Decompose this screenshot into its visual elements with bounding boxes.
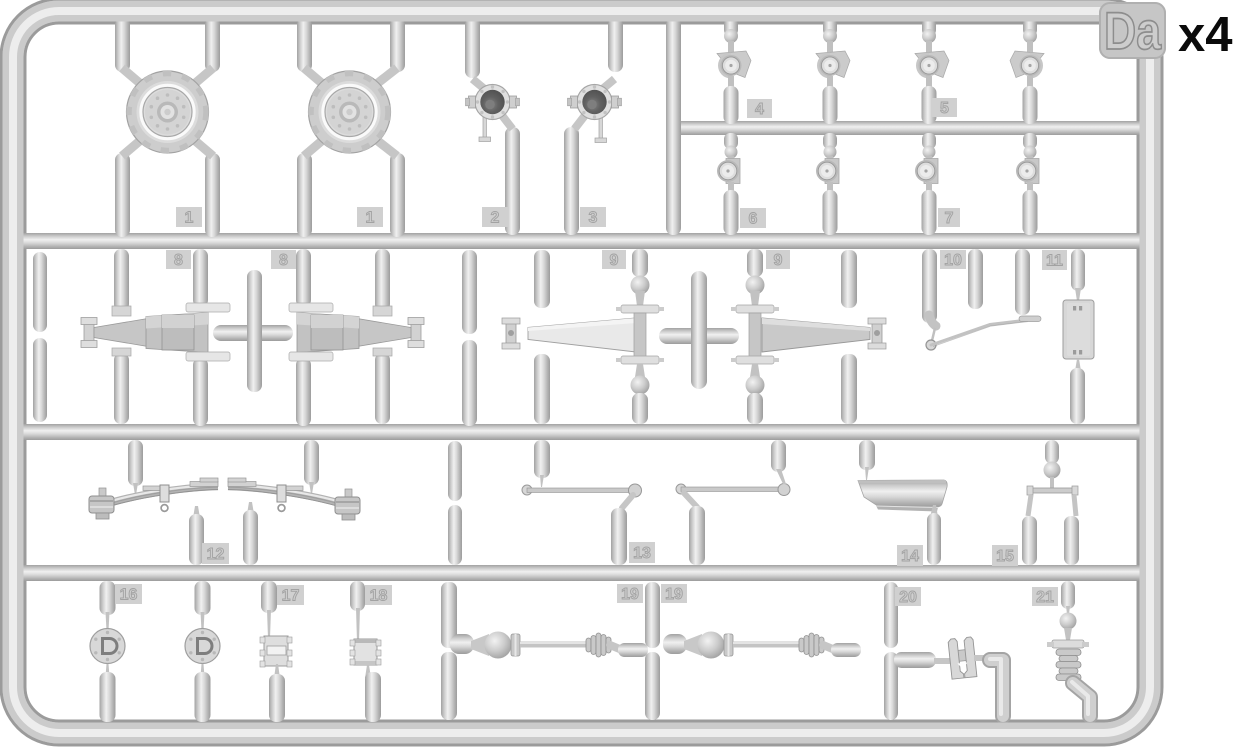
svg-text:9: 9 [610, 252, 619, 269]
svg-text:15: 15 [996, 548, 1014, 565]
svg-text:14: 14 [901, 548, 919, 565]
svg-text:19: 19 [665, 586, 683, 603]
svg-text:1: 1 [185, 210, 194, 227]
svg-text:6: 6 [749, 211, 758, 228]
svg-text:4: 4 [755, 101, 764, 118]
svg-text:1: 1 [366, 210, 375, 227]
svg-text:5: 5 [940, 100, 949, 117]
svg-text:3: 3 [589, 210, 598, 227]
svg-text:7: 7 [945, 210, 954, 227]
svg-text:12: 12 [207, 546, 225, 563]
svg-text:8: 8 [174, 252, 183, 269]
svg-text:9: 9 [774, 252, 783, 269]
svg-text:19: 19 [621, 586, 639, 603]
svg-text:18: 18 [370, 588, 388, 605]
svg-text:10: 10 [944, 252, 962, 269]
svg-text:20: 20 [899, 589, 917, 606]
svg-text:13: 13 [633, 545, 651, 562]
svg-text:21: 21 [1036, 589, 1054, 606]
svg-text:8: 8 [279, 252, 288, 269]
svg-text:11: 11 [1046, 253, 1063, 270]
svg-text:16: 16 [120, 587, 138, 604]
svg-text:Da: Da [1104, 2, 1161, 61]
svg-text:x4: x4 [1178, 8, 1233, 62]
svg-text:2: 2 [491, 210, 500, 227]
svg-text:17: 17 [282, 588, 300, 605]
